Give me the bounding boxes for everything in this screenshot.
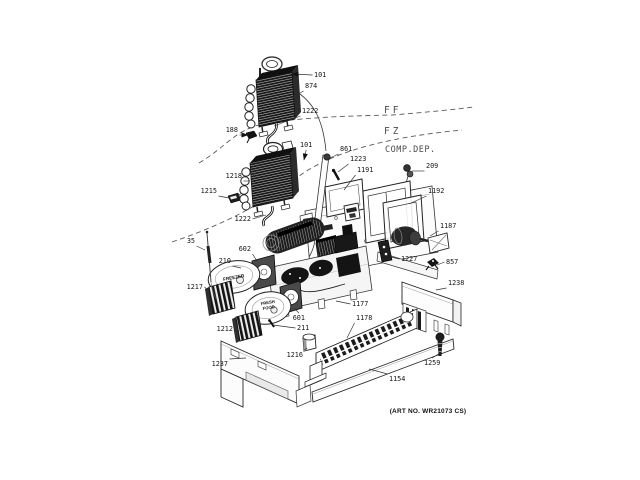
callout-188: 188 [226,126,238,134]
callout-209: 209 [426,162,438,170]
callout-1216: 1216 [287,351,303,359]
callout-861: 861 [340,145,352,153]
callout-1215: 1215 [201,187,217,195]
callout-1212: 1212 [217,325,233,333]
leader-1238 [436,288,447,290]
grommet-861 [324,154,330,160]
zone-label-ff: FF [384,105,401,116]
drain-tube-1222-upper [267,123,276,144]
callout-1178: 1178 [356,314,372,322]
callout-101: 101 [300,141,312,149]
callout-1227: 1227 [401,255,417,263]
exploded-parts-diagram: 1018741222188101861122311912091218121511… [0,0,640,480]
clip-188 [246,131,257,143]
evaporator-1218 [240,141,299,217]
callout-101: 101 [314,71,326,79]
roller-1216 [303,334,316,351]
art-number: (ART NO. WR21073 CS) [390,408,467,415]
callout-211: 211 [297,324,309,332]
coil-loops [245,85,255,128]
leader-101 [304,150,306,160]
leader-211 [273,325,296,328]
zone-labels: FFFZCOMP.DEP. [384,105,436,155]
leader-1178 [347,323,355,338]
zone-label-fz: FZ [384,126,401,137]
leader-1223 [338,164,349,172]
callout-857: 857 [446,258,458,266]
leader-35 [197,246,206,250]
callout-874: 874 [305,82,317,90]
drain-tube-1222-lower [263,206,272,226]
callout-210: 210 [219,257,231,265]
callout-1222: 1222 [235,215,251,223]
callout-1191: 1191 [357,166,373,174]
grommet-209 [404,165,413,177]
callout-1222: 1222 [302,107,318,115]
callout-1177: 1177 [352,300,368,308]
bracket-1212 [232,311,262,343]
suction-loop [262,57,282,71]
leader-1215 [219,196,230,198]
callout-1218: 1218 [226,172,242,180]
callout-1154: 1154 [389,375,405,383]
parts-diagram-page: 1018741222188101861122311912091218121511… [0,0,640,480]
callout-1237: 1237 [212,360,228,368]
screw-1223 [332,169,339,180]
callout-1238: 1238 [448,279,464,287]
leader-1177 [336,301,351,304]
callout-601: 601 [293,314,305,322]
callout-1259: 1259 [424,359,440,367]
callout-1223: 1223 [350,155,366,163]
callout-1217: 1217 [187,283,203,291]
callout-35: 35 [187,237,195,245]
callout-602: 602 [239,245,251,253]
callout-1192: 1192 [428,187,444,195]
zone-label-compdep: COMP.DEP. [385,145,436,155]
callout-1187: 1187 [440,222,456,230]
bracket-1217 [205,281,235,316]
